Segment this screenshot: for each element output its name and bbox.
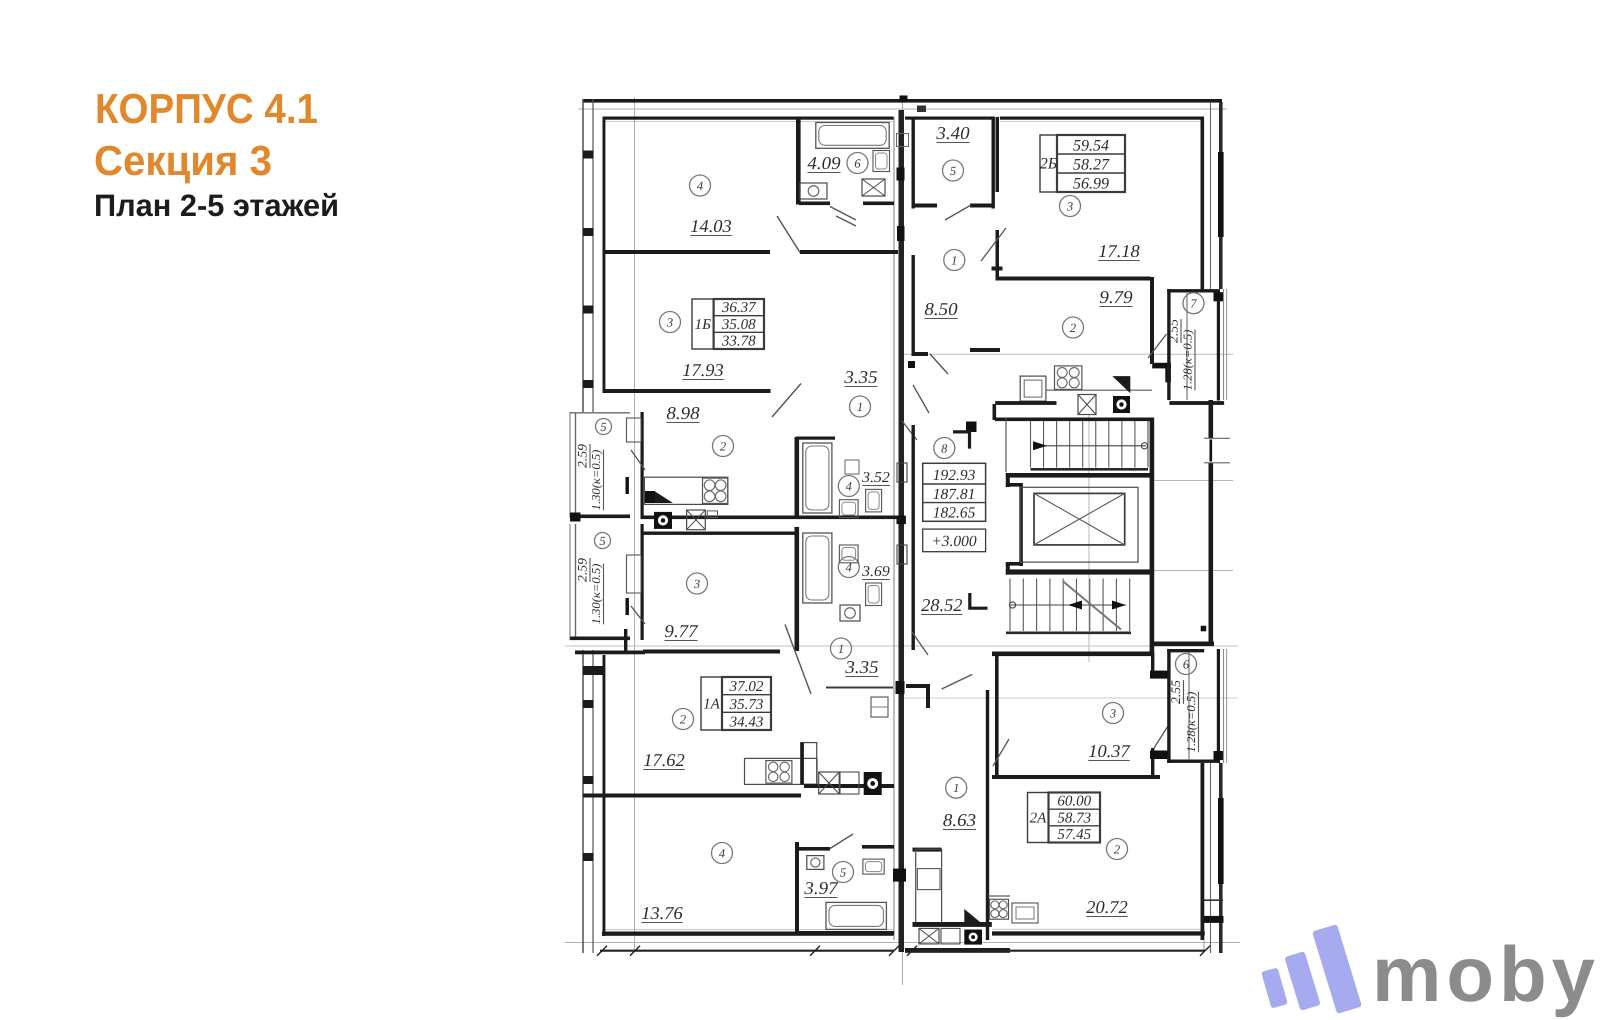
svg-text:35.08: 35.08 — [721, 317, 756, 333]
svg-text:1: 1 — [838, 642, 844, 656]
svg-text:9.79: 9.79 — [1099, 287, 1132, 307]
svg-text:4: 4 — [719, 847, 725, 861]
svg-text:moby: moby — [1372, 930, 1600, 1018]
svg-text:1.30(к=0.5): 1.30(к=0.5) — [589, 450, 603, 511]
svg-text:3.35: 3.35 — [844, 657, 878, 677]
svg-text:5: 5 — [600, 420, 606, 434]
svg-text:192.93: 192.93 — [933, 467, 976, 484]
svg-text:17.62: 17.62 — [643, 750, 684, 770]
svg-text:182.65: 182.65 — [933, 505, 976, 522]
svg-text:1.30(к=0.5): 1.30(к=0.5) — [589, 564, 603, 625]
svg-text:2.59: 2.59 — [575, 444, 590, 468]
svg-text:4.09: 4.09 — [807, 153, 840, 173]
svg-text:8.50: 8.50 — [924, 299, 957, 319]
svg-text:7: 7 — [1190, 297, 1197, 311]
svg-text:6: 6 — [1183, 658, 1190, 672]
svg-text:2.55: 2.55 — [1168, 680, 1183, 704]
svg-text:1: 1 — [951, 254, 957, 268]
svg-text:3.40: 3.40 — [935, 123, 969, 143]
svg-text:3.52: 3.52 — [861, 470, 890, 486]
svg-text:58.27: 58.27 — [1073, 157, 1110, 174]
svg-text:14.03: 14.03 — [690, 216, 731, 236]
svg-text:28.52: 28.52 — [921, 595, 962, 615]
svg-text:2.55: 2.55 — [1166, 319, 1181, 343]
svg-text:1.28(к=0.5): 1.28(к=0.5) — [1184, 692, 1198, 753]
svg-text:59.54: 59.54 — [1073, 138, 1109, 155]
svg-text:5: 5 — [840, 866, 846, 880]
svg-text:2А: 2А — [1030, 811, 1048, 827]
svg-text:3.97: 3.97 — [803, 878, 838, 898]
svg-text:1А: 1А — [703, 697, 721, 713]
svg-text:20.72: 20.72 — [1086, 897, 1127, 917]
svg-text:60.00: 60.00 — [1057, 794, 1091, 810]
svg-text:58.73: 58.73 — [1057, 810, 1091, 826]
svg-text:2.59: 2.59 — [575, 558, 590, 582]
svg-text:57.45: 57.45 — [1057, 827, 1091, 843]
svg-text:3: 3 — [666, 316, 673, 330]
svg-text:13.76: 13.76 — [641, 903, 682, 923]
svg-text:56.99: 56.99 — [1073, 176, 1109, 193]
svg-text:33.78: 33.78 — [721, 334, 756, 350]
svg-text:9.77: 9.77 — [664, 621, 698, 641]
svg-text:4: 4 — [697, 179, 703, 193]
svg-text:2: 2 — [1070, 321, 1076, 335]
svg-text:36.37: 36.37 — [721, 300, 757, 316]
svg-text:5: 5 — [599, 534, 605, 548]
svg-text:1Б: 1Б — [695, 317, 712, 333]
svg-text:1: 1 — [857, 400, 863, 414]
svg-text:17.93: 17.93 — [682, 360, 723, 380]
svg-text:8.63: 8.63 — [943, 810, 976, 830]
svg-text:187.81: 187.81 — [933, 486, 976, 503]
svg-text:6: 6 — [854, 157, 861, 171]
svg-text:8: 8 — [941, 442, 948, 456]
svg-text:35.73: 35.73 — [729, 697, 764, 713]
svg-text:17.18: 17.18 — [1098, 241, 1139, 261]
svg-text:План 2-5 этажей: План 2-5 этажей — [94, 188, 339, 223]
svg-text:3.69: 3.69 — [861, 564, 890, 580]
svg-text:3.35: 3.35 — [843, 367, 877, 387]
svg-text:3: 3 — [693, 577, 700, 591]
svg-text:Секция 3: Секция 3 — [94, 137, 272, 184]
svg-text:8.98: 8.98 — [666, 403, 699, 423]
svg-text:37.02: 37.02 — [729, 679, 764, 695]
svg-text:2: 2 — [1114, 843, 1120, 857]
svg-text:1: 1 — [953, 781, 959, 795]
svg-text:5: 5 — [950, 164, 956, 178]
svg-text:10.37: 10.37 — [1088, 741, 1130, 761]
svg-text:3: 3 — [1066, 200, 1073, 214]
svg-text:2: 2 — [680, 713, 686, 727]
svg-text:2: 2 — [720, 440, 726, 454]
svg-text:КОРПУС 4.1: КОРПУС 4.1 — [95, 85, 318, 132]
svg-text:1.28(к=0.5): 1.28(к=0.5) — [1181, 330, 1195, 391]
svg-text:34.43: 34.43 — [729, 715, 764, 731]
svg-text:+3.000: +3.000 — [931, 533, 977, 550]
svg-text:2Б: 2Б — [1040, 156, 1058, 173]
svg-text:4: 4 — [846, 480, 852, 494]
svg-text:3: 3 — [1109, 707, 1116, 721]
